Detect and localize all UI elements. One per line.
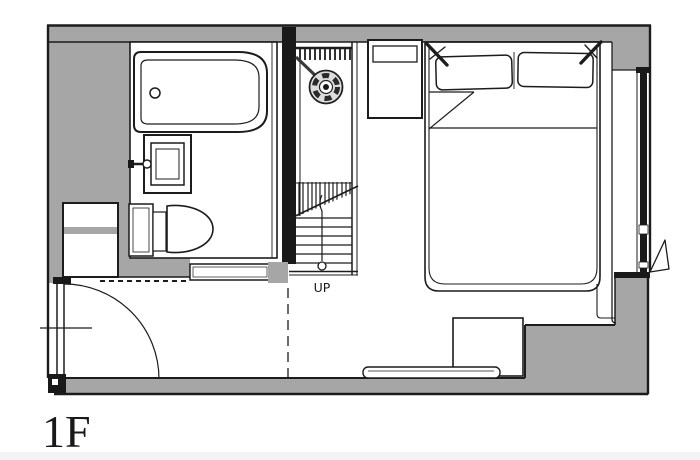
- pillow-left: [436, 55, 513, 90]
- door-hinge-block: [53, 277, 71, 284]
- wall-left-column: [47, 203, 63, 283]
- alcove-shelf: [64, 227, 117, 234]
- window-glass: [640, 72, 647, 273]
- wall-left-mass: [47, 25, 130, 206]
- stair-start-circle: [318, 262, 326, 270]
- watermark-strip: [0, 452, 700, 460]
- entry-alcove: [63, 203, 118, 277]
- bathtub-drain: [150, 88, 160, 98]
- floor-plan-svg: UP: [0, 0, 700, 460]
- window-sill-bottom: [614, 272, 650, 278]
- window-right: [614, 67, 669, 278]
- floor-label: 1F: [42, 406, 91, 457]
- window-flap: [650, 240, 669, 272]
- stair-treads: [296, 218, 352, 263]
- window-sill-top: [636, 67, 651, 73]
- wall-mid-column: [118, 203, 130, 263]
- wall-bathroom-south: [118, 258, 190, 277]
- shower-west-wall: [282, 27, 296, 264]
- shower-head-icon: [310, 71, 343, 104]
- floor-rail: [363, 367, 500, 378]
- stair-walk-line: [320, 195, 322, 261]
- towel-rail: [296, 48, 352, 60]
- wall-bottom: [55, 378, 525, 395]
- nightstand: [368, 40, 422, 118]
- post-notch: [52, 379, 58, 385]
- wall-top: [47, 25, 651, 42]
- window-mullion: [639, 225, 648, 234]
- bathroom: [128, 42, 277, 258]
- up-label: UP: [314, 280, 331, 295]
- wall-step-right: [615, 278, 649, 325]
- entrance-door: [40, 277, 159, 393]
- door-swing-arc: [64, 284, 159, 379]
- sliding-door: [190, 262, 288, 283]
- floor-plan-page: UP: [0, 0, 700, 460]
- wall-step-lower: [525, 325, 649, 395]
- door-pocket: [268, 262, 288, 283]
- shower-room: UP: [282, 27, 358, 295]
- wall-top-right-block: [612, 25, 651, 70]
- stair-upper-flight-hatch: [299, 180, 350, 218]
- toilet-seat-hinge: [153, 212, 166, 251]
- pillow-right: [518, 52, 594, 87]
- bed: [425, 42, 601, 291]
- stairs: UP: [289, 180, 358, 295]
- bathtub: [134, 52, 267, 132]
- sink-faucet-handle: [128, 160, 134, 168]
